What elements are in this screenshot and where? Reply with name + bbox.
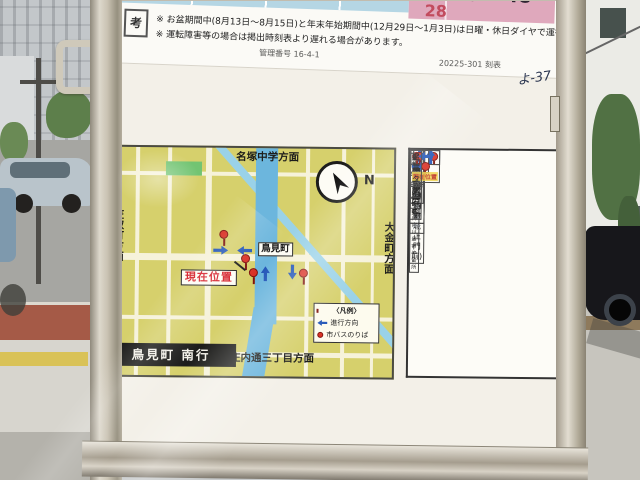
timetable-number: 48 bbox=[505, 0, 532, 8]
utility-pole-arm bbox=[20, 80, 56, 84]
direction-label-east: 大金町方面 bbox=[382, 221, 396, 274]
bus-stop-pin-icon bbox=[299, 269, 308, 278]
bus-stop-photo-scene: 26 25 48 28 考 ※ お盆期間中(8月13日〜8月15日)と年末年始期… bbox=[0, 0, 640, 480]
compass-needle-icon bbox=[323, 167, 354, 199]
remarks-header-cell: 考 bbox=[124, 9, 149, 38]
map-road bbox=[304, 149, 310, 377]
pedestrian-shadow bbox=[0, 284, 26, 316]
admin-number: 管理番号 16-4-1 bbox=[259, 47, 320, 60]
compass-north-label: N bbox=[364, 173, 375, 188]
area-map: N 名塚中学方面 庄内通三丁目方面 笠取町方面 大金町方面 鳥見町 現在位置 〈… bbox=[106, 145, 396, 380]
yellow-tactile-strip bbox=[0, 352, 88, 366]
print-code: 20225-301 刻表 bbox=[439, 58, 502, 71]
current-position-label: 現在位置 bbox=[181, 269, 237, 286]
handwritten-note: よ-37 bbox=[516, 65, 553, 89]
pavement-shadow-left bbox=[0, 432, 92, 480]
direction-label-north: 名塚中学方面 bbox=[236, 149, 299, 165]
bus-stop-sign-board: 26 25 48 28 考 ※ お盆期間中(8月13日〜8月15日)と年末年始期… bbox=[92, 0, 568, 458]
legend-direction-label: 進行方向 bbox=[330, 318, 358, 328]
sign-frame-left-post bbox=[90, 0, 122, 480]
direction-label-south: 庄内通三丁目方面 bbox=[230, 350, 314, 366]
silver-car-window bbox=[10, 162, 70, 178]
compass-icon bbox=[316, 161, 358, 203]
bus-stop-pin-icon-current bbox=[241, 254, 250, 263]
blue-car-nose bbox=[0, 188, 16, 262]
timetable-holiday-block: 25 48 28 bbox=[408, 0, 555, 24]
map-waterway-vertical bbox=[254, 145, 278, 325]
timetable-number: 25 bbox=[453, 0, 480, 6]
silver-car-wheel-front bbox=[14, 194, 33, 213]
map-road-main bbox=[109, 253, 393, 263]
bus-stop-pin-icon bbox=[317, 332, 323, 338]
sign-frame-bottom-rail bbox=[82, 440, 588, 480]
route-table: 行先 (五十音順) 系統 経由 バスのりば 沿線の主な施設等 ( )内は最寄停留… bbox=[406, 148, 564, 380]
tree-left bbox=[46, 90, 92, 138]
tree-left-2 bbox=[0, 122, 28, 162]
map-road bbox=[204, 148, 212, 376]
map-legend: 〈凡例〉 進行方向 市バスのりば bbox=[313, 303, 379, 344]
timetable-sheet: 26 25 48 28 考 ※ お盆期間中(8月13日〜8月15日)と年末年始期… bbox=[108, 0, 563, 79]
timetable-number: 28 bbox=[424, 1, 447, 21]
silver-car-wheel-rear bbox=[62, 194, 81, 213]
black-car-wheel bbox=[604, 294, 636, 326]
frame-handle-bracket bbox=[56, 40, 92, 94]
arrow-left-icon bbox=[317, 320, 327, 326]
timetable-weekday-block: 26 bbox=[119, 0, 410, 13]
legend-title: 〈凡例〉 bbox=[317, 306, 375, 317]
arrow-down-icon bbox=[288, 265, 297, 280]
frame-clip bbox=[550, 96, 560, 132]
map-road bbox=[134, 147, 140, 375]
bus-stop-pin-icon bbox=[219, 230, 228, 239]
facility-cell: ノリタケの森 bbox=[409, 150, 422, 220]
bus-stop-pin-icon bbox=[249, 268, 258, 277]
map-panel: N 名塚中学方面 庄内通三丁目方面 笠取町方面 大金町方面 鳥見町 現在位置 〈… bbox=[106, 145, 564, 384]
stop-heading-label: 鳥見町 南行 bbox=[106, 343, 236, 367]
sign-frame-right-post bbox=[556, 0, 586, 480]
map-park-block bbox=[166, 161, 202, 175]
map-road bbox=[166, 147, 172, 375]
map-stop-name-box: 鳥見町 bbox=[258, 242, 293, 256]
legend-bus-stop-label: 市バスのりば bbox=[326, 330, 368, 340]
